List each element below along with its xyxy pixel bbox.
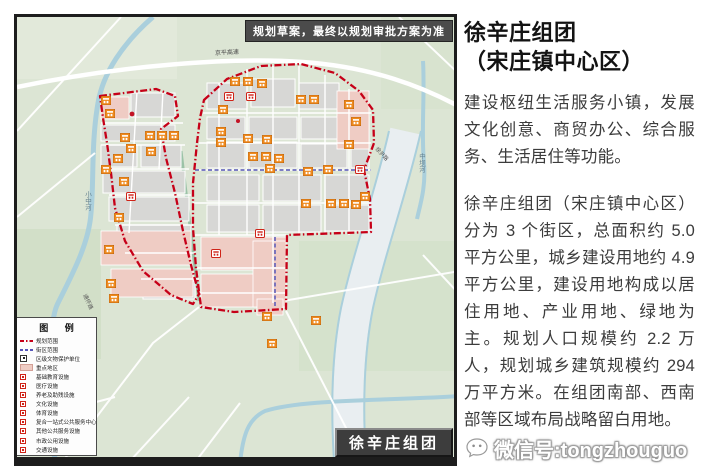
- legend-item: 重点地区: [17, 363, 96, 372]
- map-area-banner: 徐辛庄组团: [335, 428, 453, 457]
- elderly-care-icon: [20, 392, 33, 398]
- medical-icon: [20, 383, 33, 389]
- sports-icon: [20, 410, 33, 416]
- legend-item: 养老及助残设施: [17, 391, 96, 400]
- legend-item: 街区范围: [17, 345, 96, 354]
- key-area-swatch: [20, 364, 33, 371]
- map-disclaimer-banner: 规划草案，最终以规划审批方案为准: [245, 20, 453, 42]
- transport-icon: [20, 447, 33, 453]
- heritage-swatch: [20, 355, 33, 362]
- page: 京平高速 小中河 中坝河 徐尹路 通怀路 图 例 规划范围 街区范围 区级文物保…: [0, 0, 706, 475]
- service-center-icon: [20, 419, 33, 425]
- detail-paragraph: 徐辛庄组团（宋庄镇中心区）分为 3 个街区，总面积约 5.0 平方公里，城乡建设…: [464, 191, 695, 434]
- legend-item: 复合一站式公共服务中心: [17, 418, 96, 427]
- other-public-icon: [20, 428, 33, 434]
- legend: 图 例 规划范围 街区范围 区级文物保护单位 重点地区 基础教育设施 医疗设施 …: [17, 317, 97, 456]
- education-icon: [20, 374, 33, 380]
- page-title: 徐辛庄组团（宋庄镇中心区）: [464, 18, 695, 76]
- description-panel: 徐辛庄组团（宋庄镇中心区） 建设枢纽生活服务小镇，发展文化创意、商贸办公、综合服…: [464, 18, 695, 454]
- culture-icon: [20, 401, 33, 407]
- legend-item: 区级文物保护单位: [17, 354, 96, 363]
- legend-item: 文化设施: [17, 400, 96, 409]
- plan-map-panel: 京平高速 小中河 中坝河 徐尹路 通怀路 图 例 规划范围 街区范围 区级文物保…: [14, 14, 457, 466]
- legend-item: 规划范围: [17, 336, 96, 345]
- heritage-site-dot: [130, 112, 135, 117]
- heritage-site-dot: [236, 119, 240, 123]
- legend-item: 医疗设施: [17, 381, 96, 390]
- legend-title: 图 例: [17, 318, 96, 336]
- legend-item: 市政公用设施: [17, 436, 96, 445]
- block-boundary-swatch: [20, 349, 33, 351]
- municipal-icon: [20, 438, 33, 444]
- legend-item: 交通设施: [17, 445, 96, 454]
- legend-item: 其他公共服务设施: [17, 427, 96, 436]
- summary-paragraph: 建设枢纽生活服务小镇，发展文化创意、商贸办公、综合服务、生活居住等功能。: [464, 90, 695, 171]
- legend-item: 体育设施: [17, 409, 96, 418]
- legend-item: 基础教育设施: [17, 372, 96, 381]
- planning-boundary-swatch: [20, 340, 33, 342]
